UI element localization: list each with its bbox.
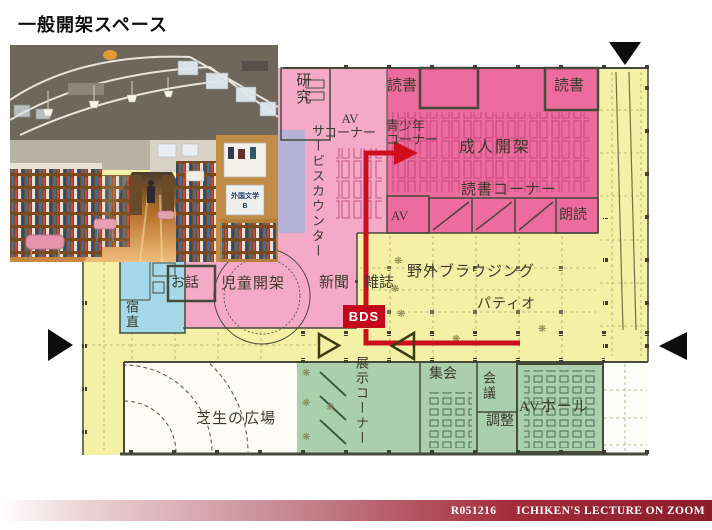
slide: { "slide": { "title": "一般開架スペース" }, "foo… <box>0 0 712 530</box>
footer-bar: R051216 ICHIKEN'S LECTURE ON ZOOM <box>0 500 712 521</box>
zone-staff-lavender <box>277 130 305 233</box>
av-shelves <box>336 148 382 220</box>
footer-code: R051216 <box>451 505 497 517</box>
library-photo: 外国文学 B <box>10 45 278 262</box>
shelf-sign-text: 外国文学 <box>231 191 259 200</box>
svg-text:❋: ❋ <box>302 368 310 379</box>
meeting-seats <box>428 392 472 448</box>
marker-triangle-down-icon <box>609 42 641 65</box>
adult-shelves <box>392 112 590 192</box>
av-hall-seats <box>524 370 598 448</box>
person-silhouette <box>147 180 155 203</box>
svg-text:❋: ❋ <box>302 432 310 443</box>
vent <box>242 61 268 71</box>
svg-text:❋: ❋ <box>394 256 402 267</box>
zone-lawn <box>124 362 297 453</box>
marker-triangle-left-icon <box>659 332 687 360</box>
svg-text:❋: ❋ <box>326 402 334 413</box>
bds-gate-label: BDS <box>343 305 385 328</box>
footer-title: ICHIKEN'S LECTURE ON ZOOM <box>516 505 705 517</box>
svg-text:❋: ❋ <box>302 398 310 409</box>
lamp-glow <box>103 50 117 60</box>
page-title: 一般開架スペース <box>18 11 168 37</box>
air-duct <box>68 83 104 95</box>
shelf-sign-strip <box>10 163 102 169</box>
library-photo-scene: 外国文学 B <box>10 45 278 262</box>
shelf-end-panel: 外国文学 B <box>216 135 278 262</box>
svg-text:❋: ❋ <box>391 284 399 295</box>
svg-text:❋: ❋ <box>538 324 546 335</box>
shelf-sign-sub: B <box>242 203 247 210</box>
marker-triangle-right-icon <box>48 329 73 361</box>
zone-cutout <box>603 362 648 453</box>
svg-text:❋: ❋ <box>397 309 405 320</box>
